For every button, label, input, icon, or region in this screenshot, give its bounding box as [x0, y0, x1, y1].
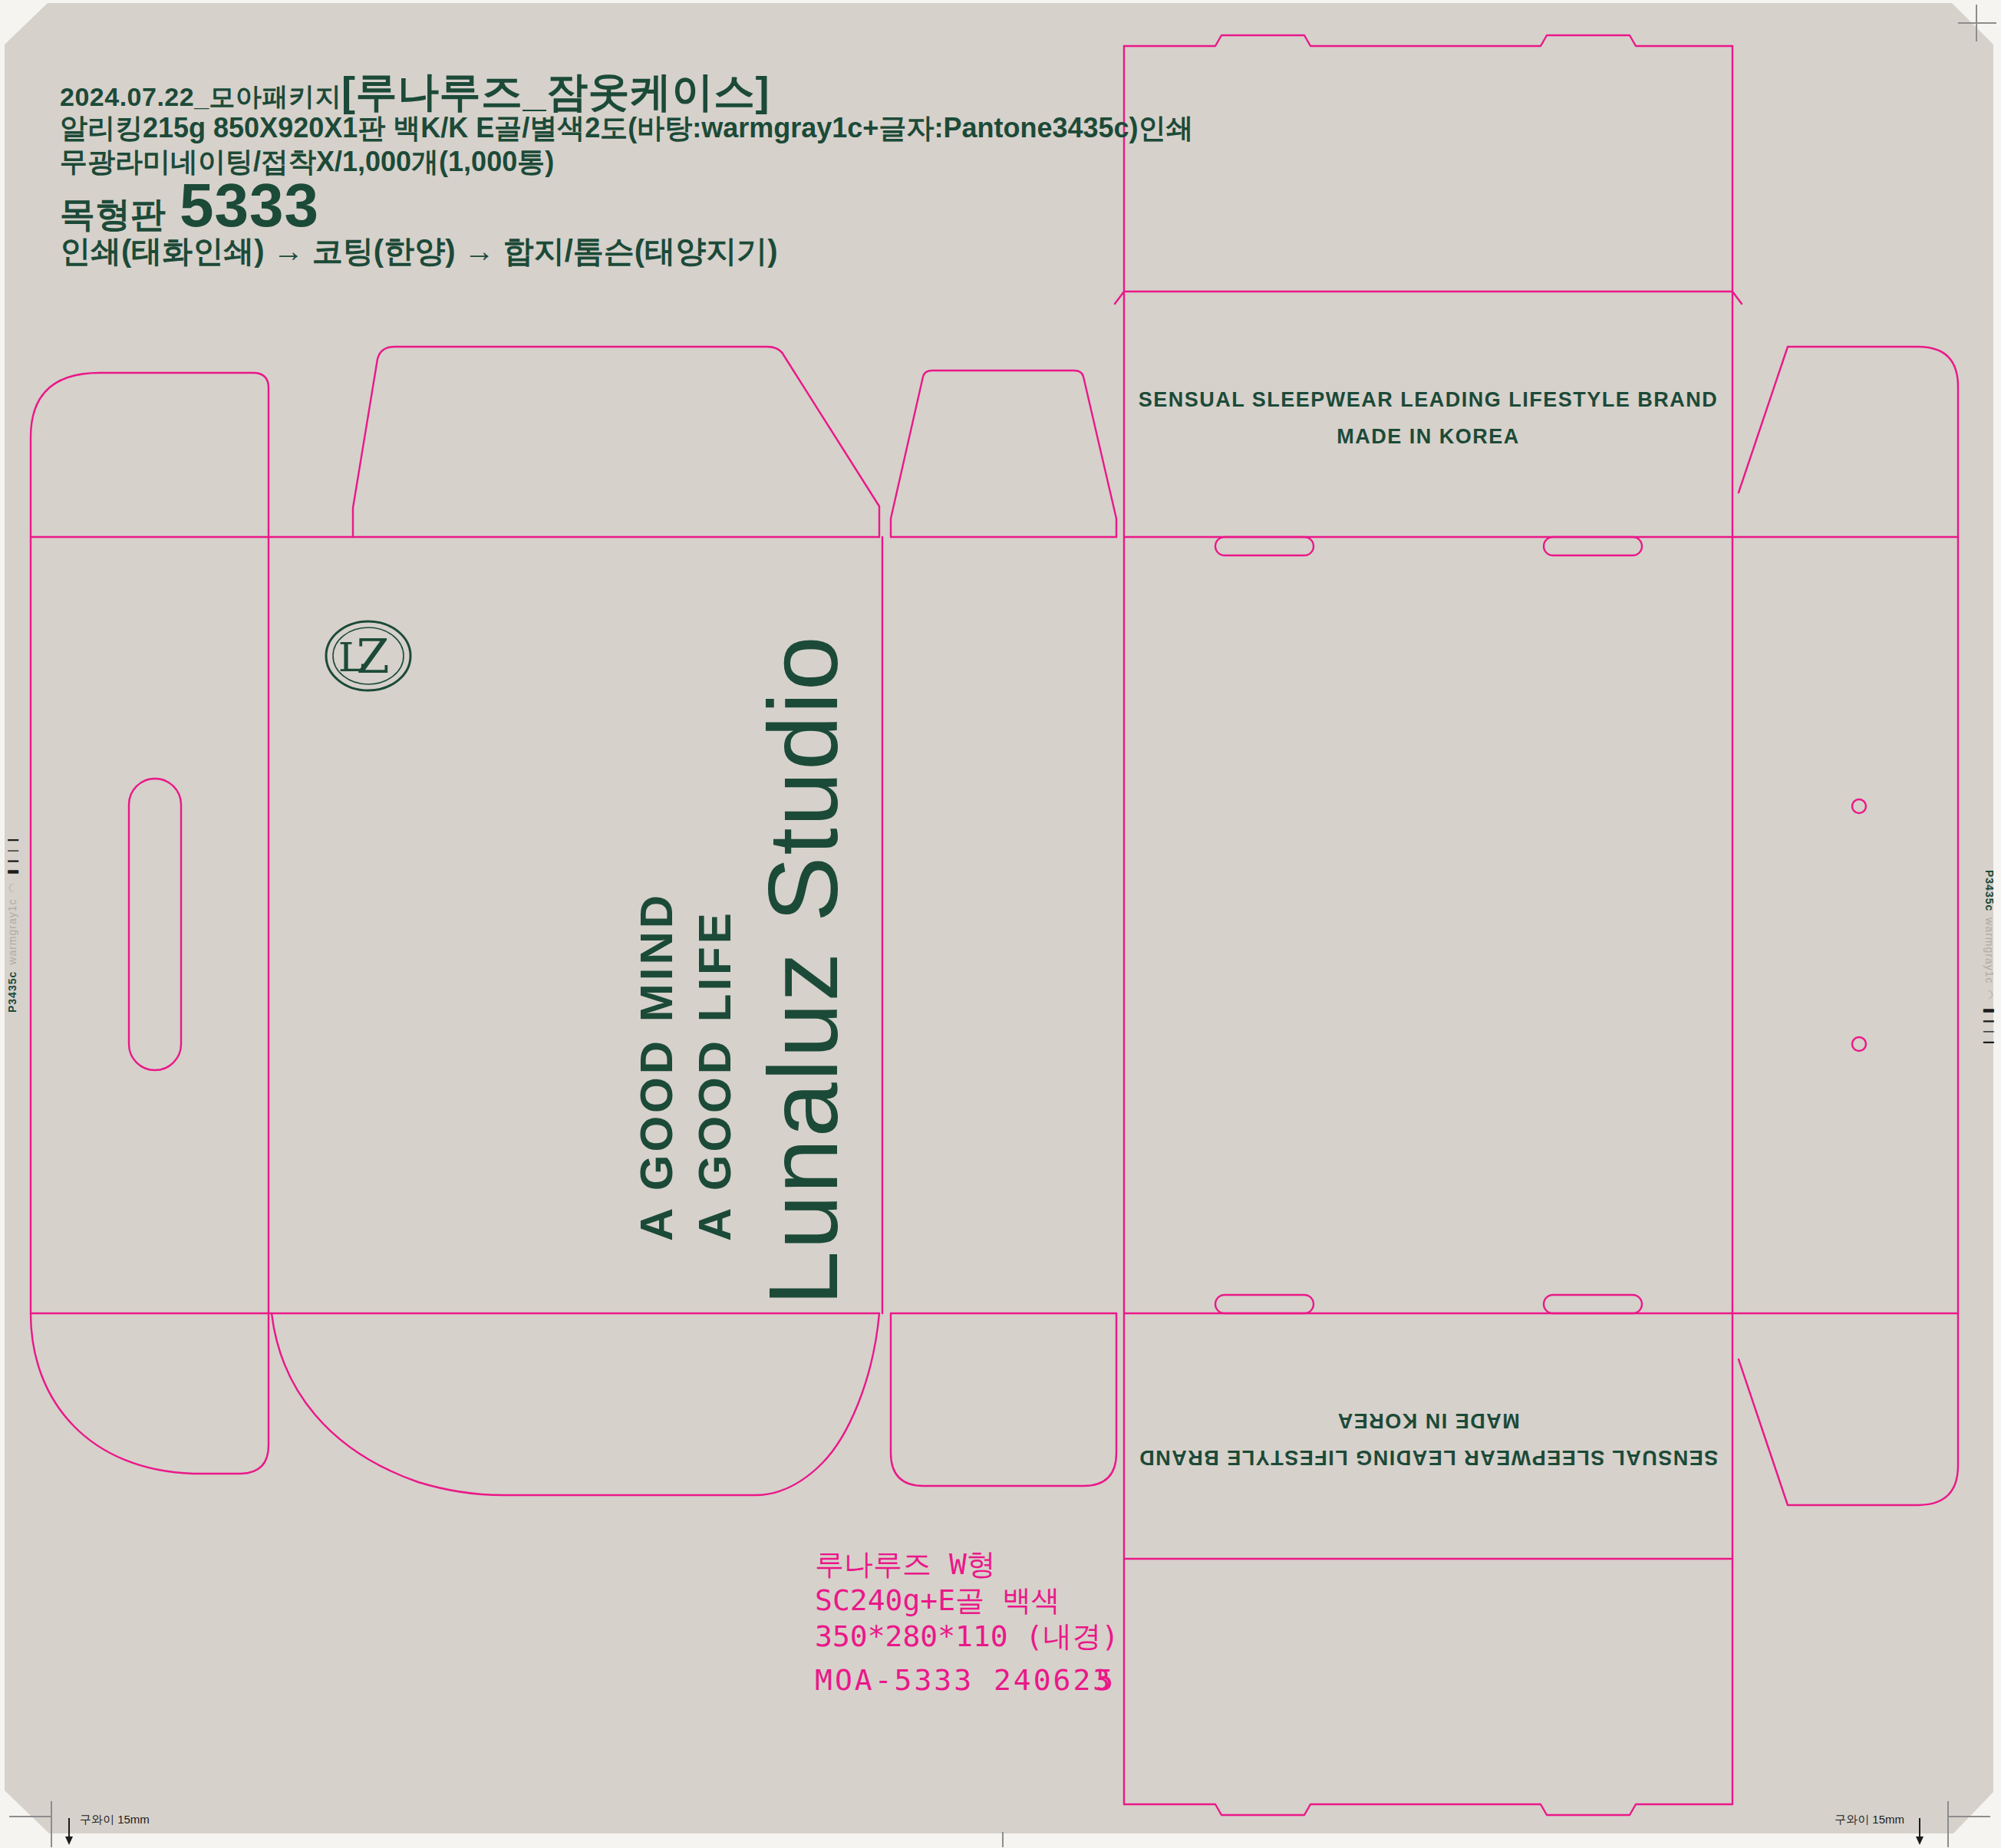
digit-over: 5 [1096, 1662, 1116, 1698]
spec-code-prefix: MOA-5333 24062 [815, 1663, 1093, 1697]
brand-slogan-flipped: SENSUAL SLEEPWEAR LEADING LIFESTYLE BRAN… [1124, 1445, 1732, 1469]
pantone-swatch-label-right: P3435c [1983, 870, 1996, 911]
spec-material-line: SC240g+E골 백색 [815, 1583, 1119, 1619]
colorbar-icon-right: ❚❙❘❙ [1983, 1006, 1996, 1049]
gap-note-text: 구와이 15mm [80, 1813, 150, 1826]
arrowhead-bottom-right-icon [1916, 1836, 1924, 1845]
colorbar-icon: ❚❙❘❙ [6, 834, 18, 876]
paper-swatch-label: warmgray1c [6, 898, 18, 964]
spec-code-line: MOA-5333 2406235 [815, 1662, 1119, 1698]
dieline-proof-sheet: L Z 2024.07.22_모아패키지 [루나루즈_잠옷케이스] 알리킹215… [0, 0, 2001, 1848]
spec-code-overlapped-digit: 35 [1093, 1662, 1113, 1698]
arrowhead-bottom-left-icon [65, 1836, 73, 1845]
print-spec-line-1: 알리킹215g 850X920X1판 백K/K E골/별색2도(바탕:warmg… [60, 110, 1194, 147]
brand-wordmark: Lunaluz Studio [750, 634, 856, 1306]
corner-note-bottom-right: 구와이 15mm [1788, 1813, 1904, 1827]
tagline-good-life: A GOOD LIFE [687, 910, 743, 1241]
swatch-label-right: P3435cwarmgray1c◠❚❙❘❙ [1983, 870, 1996, 1049]
made-in-korea: MADE IN KOREA [1124, 425, 1732, 449]
tagline-good-mind: A GOOD MIND [629, 892, 684, 1241]
brand-slogan: SENSUAL SLEEPWEAR LEADING LIFESTYLE BRAN… [1124, 388, 1732, 412]
semicircle-mark-icon-right: ◠ [1983, 990, 1996, 1000]
gap-note-text-right: 구와이 15mm [1835, 1813, 1904, 1826]
pantone-swatch-label: P3435c [6, 971, 18, 1013]
swatch-label-left: P3435cwarmgray1c◠❚❙❘❙ [6, 834, 18, 1013]
logo-letter-z: Z [356, 628, 389, 684]
tray-top-panel-text: SENSUAL SLEEPWEAR LEADING LIFESTYLE BRAN… [1124, 388, 1732, 449]
semicircle-mark-icon: ◠ [6, 882, 18, 892]
paper-swatch-label-right: warmgray1c [1983, 917, 1996, 983]
made-in-korea-flipped: MADE IN KOREA [1124, 1408, 1732, 1432]
spec-model-line: 루나루즈 W형 [815, 1547, 1119, 1583]
cad-spec-note: 루나루즈 W형 SC240g+E골 백색 350*280*110 (내경) MO… [815, 1547, 1119, 1698]
process-flow: 인쇄(태화인쇄) → 코팅(한양) → 합지/톰슨(태양지기) [60, 230, 778, 272]
tray-bottom-panel-text-flipped: SENSUAL SLEEPWEAR LEADING LIFESTYLE BRAN… [1124, 1408, 1732, 1469]
corner-note-bottom-left: 구와이 15mm [80, 1813, 150, 1827]
spec-dimensions-line: 350*280*110 (내경) [815, 1619, 1119, 1655]
